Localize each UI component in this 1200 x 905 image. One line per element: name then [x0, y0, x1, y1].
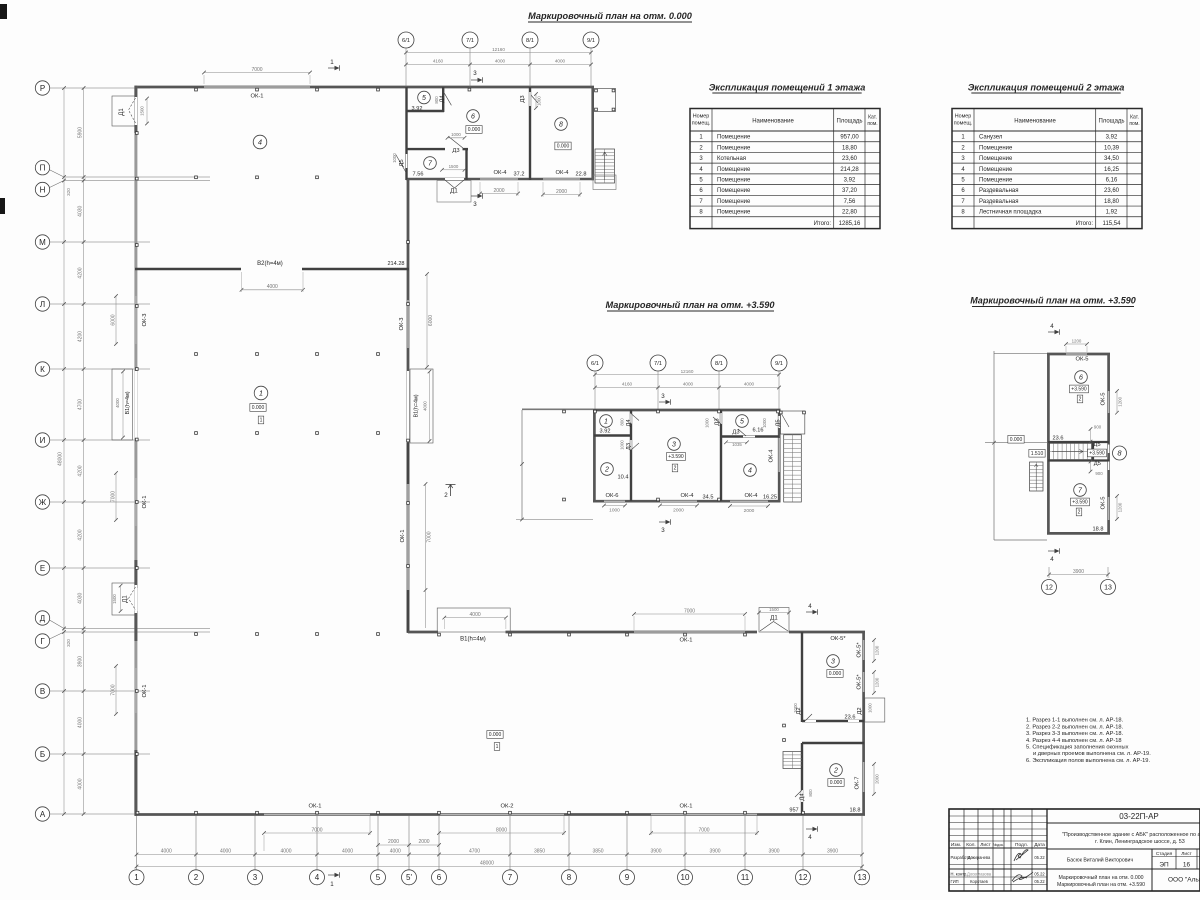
svg-text:8/1: 8/1 — [526, 38, 534, 44]
svg-text:800: 800 — [434, 96, 439, 104]
svg-text:23.6: 23.6 — [845, 715, 856, 721]
svg-text:3900: 3900 — [709, 848, 720, 854]
svg-text:12160: 12160 — [492, 47, 505, 52]
svg-text:1035: 1035 — [732, 442, 742, 447]
svg-text:0.000: 0.000 — [829, 671, 842, 677]
svg-text:18.8: 18.8 — [1093, 526, 1104, 532]
svg-text:Дата: Дата — [1034, 842, 1045, 848]
svg-text:+3.590: +3.590 — [668, 454, 684, 460]
svg-text:1000: 1000 — [705, 418, 710, 428]
svg-text:Д5: Д5 — [776, 419, 782, 426]
svg-text:Коротаев: Коротаев — [970, 879, 988, 884]
svg-text:3850: 3850 — [534, 848, 545, 854]
svg-text:4000: 4000 — [267, 284, 278, 290]
svg-text:Д: Д — [40, 614, 46, 623]
svg-text:ОК-5*: ОК-5* — [857, 642, 863, 658]
svg-text:37.2: 37.2 — [514, 172, 525, 178]
svg-text:16: 16 — [1183, 862, 1191, 869]
svg-text:Лестничная площадка: Лестничная площадка — [979, 210, 1042, 216]
svg-text:Маркировочный план на отм. +3.: Маркировочный план на отм. +3.590 — [970, 296, 1136, 306]
svg-text:1.510: 1.510 — [1031, 451, 1044, 457]
svg-text:Кол.: Кол. — [966, 842, 976, 848]
svg-text:5': 5' — [406, 873, 412, 882]
svg-text:1500: 1500 — [769, 607, 779, 612]
svg-text:957: 957 — [789, 808, 798, 814]
svg-text:3.92: 3.92 — [600, 429, 611, 435]
svg-text:пом.: пом. — [1129, 121, 1139, 127]
svg-text:Итого:: Итого: — [814, 221, 832, 227]
svg-text:7000: 7000 — [427, 531, 433, 542]
svg-text:Помещение: Помещение — [717, 188, 751, 194]
svg-text:ГИП: ГИП — [951, 879, 959, 884]
svg-text:М: М — [39, 238, 46, 247]
svg-text:48000: 48000 — [58, 452, 64, 466]
svg-text:1: 1 — [496, 744, 499, 750]
svg-text:И: И — [40, 436, 46, 445]
svg-text:1500: 1500 — [140, 106, 145, 116]
svg-text:5: 5 — [376, 873, 381, 882]
svg-text:Д1: Д1 — [123, 595, 129, 603]
svg-text:Стадия: Стадия — [1156, 851, 1173, 857]
svg-text:Котельная: Котельная — [717, 156, 746, 162]
svg-text:3900: 3900 — [650, 848, 661, 854]
svg-text:ООО "Альп: ООО "Альп — [1168, 877, 1200, 884]
svg-text:+3.590: +3.590 — [1089, 451, 1105, 457]
svg-text:05.22: 05.22 — [1034, 855, 1045, 860]
svg-text:05.22: 05.22 — [1034, 871, 1045, 876]
svg-text:4030: 4030 — [78, 205, 84, 216]
svg-text:Изм.: Изм. — [951, 842, 961, 848]
svg-text:Д1: Д1 — [119, 108, 125, 116]
svg-text:34.5: 34.5 — [703, 495, 714, 501]
svg-text:Д5: Д5 — [1093, 442, 1100, 448]
svg-text:4000: 4000 — [78, 778, 84, 789]
svg-text:800: 800 — [808, 789, 813, 797]
svg-text:9/1: 9/1 — [587, 38, 595, 44]
svg-text:4700: 4700 — [469, 848, 480, 854]
svg-text:1200: 1200 — [1117, 396, 1122, 406]
svg-text:7/1: 7/1 — [466, 38, 474, 44]
svg-text:900: 900 — [1095, 471, 1103, 476]
svg-text:48000: 48000 — [480, 860, 494, 866]
svg-text:Д1: Д1 — [450, 189, 458, 195]
svg-text:Д5: Д5 — [1094, 461, 1101, 467]
svg-text:3: 3 — [253, 873, 258, 882]
svg-text:ОК-5*: ОК-5* — [830, 636, 846, 642]
svg-text:Санузел: Санузел — [979, 135, 1003, 141]
svg-text:1000: 1000 — [868, 703, 873, 713]
svg-text:4160: 4160 — [433, 59, 444, 64]
svg-text:Д2: Д2 — [857, 707, 863, 714]
svg-text:помещ.: помещ. — [692, 121, 711, 127]
svg-text:4000: 4000 — [495, 59, 506, 64]
svg-text:ОК-1: ОК-1 — [679, 804, 692, 810]
svg-text:А: А — [40, 810, 46, 819]
svg-text:Д4: Д4 — [440, 95, 446, 103]
svg-text:23,60: 23,60 — [1104, 188, 1120, 194]
svg-text:0.000: 0.000 — [557, 144, 570, 150]
svg-text:23.6: 23.6 — [1053, 436, 1064, 442]
svg-text:0.000: 0.000 — [468, 127, 481, 133]
svg-text:1000: 1000 — [536, 96, 541, 106]
svg-text:Помещение: Помещение — [717, 199, 751, 205]
svg-text:10.4: 10.4 — [618, 475, 629, 481]
svg-text:3900: 3900 — [1073, 569, 1084, 575]
svg-text:В: В — [40, 687, 45, 696]
svg-text:Лист: Лист — [980, 842, 991, 848]
svg-text:3: 3 — [661, 527, 665, 534]
svg-text:ОК-3: ОК-3 — [142, 313, 148, 326]
svg-text:2000: 2000 — [744, 508, 755, 514]
svg-text:Раздевальная: Раздевальная — [979, 188, 1019, 194]
svg-text:3850: 3850 — [592, 848, 603, 854]
svg-text:Помещение: Помещение — [979, 156, 1013, 162]
svg-text:4000: 4000 — [220, 848, 231, 854]
svg-text:3: 3 — [831, 659, 835, 666]
svg-text:Д3: Д3 — [626, 443, 632, 450]
svg-text:и дверных проемов выполнена см: и дверных проемов выполнена см. л. АР-19… — [1033, 751, 1151, 757]
svg-text:6: 6 — [437, 873, 442, 882]
svg-text:2. Разрез 2-2 выполнен см. л.: 2. Разрез 2-2 выполнен см. л. АР-18. — [1026, 724, 1124, 730]
svg-text:Подл.: Подл. — [1015, 842, 1028, 848]
svg-text:Помещение: Помещение — [979, 145, 1013, 151]
svg-text:4000: 4000 — [342, 848, 353, 854]
svg-text:7/1: 7/1 — [654, 361, 662, 367]
svg-text:1: 1 — [134, 873, 139, 882]
svg-text:Д4: Д4 — [626, 419, 632, 427]
svg-text:3. Разрез 3-3 выполнен см. л.: 3. Разрез 3-3 выполнен см. л. АР-18. — [1026, 731, 1124, 737]
svg-text:ЭП: ЭП — [1159, 862, 1169, 869]
svg-text:"Производственное здание с АБК: "Производственное здание с АБК" располож… — [1062, 832, 1200, 838]
svg-text:1200: 1200 — [874, 645, 879, 655]
svg-text:2000: 2000 — [388, 839, 399, 845]
svg-text:34,50: 34,50 — [1104, 156, 1120, 162]
svg-text:7000: 7000 — [311, 827, 322, 833]
svg-text:ОК-6: ОК-6 — [605, 493, 618, 499]
svg-text:ОК-1: ОК-1 — [308, 804, 321, 810]
svg-text:4000: 4000 — [423, 401, 428, 411]
svg-text:1. Разрез 1-1 выполнен см. л.: 1. Разрез 1-1 выполнен см. л. АР-18. — [1026, 718, 1124, 724]
svg-text:7000: 7000 — [110, 684, 116, 695]
svg-text:4000: 4000 — [390, 848, 401, 854]
svg-text:2: 2 — [444, 492, 448, 499]
svg-text:+3.590: +3.590 — [1071, 387, 1087, 393]
svg-text:05.22: 05.22 — [1034, 879, 1045, 884]
svg-text:1500: 1500 — [449, 164, 459, 169]
svg-text:2000: 2000 — [493, 188, 504, 194]
svg-text:Д5: Д5 — [399, 159, 405, 166]
svg-text:4000: 4000 — [115, 398, 120, 408]
svg-text:5: 5 — [422, 95, 426, 102]
svg-text:320: 320 — [66, 188, 71, 196]
svg-text:2000: 2000 — [418, 839, 429, 845]
svg-text:10: 10 — [681, 873, 690, 882]
svg-text:12: 12 — [1045, 585, 1053, 592]
svg-text:10,39: 10,39 — [1104, 145, 1120, 151]
svg-text:ОК-4: ОК-4 — [769, 449, 775, 463]
svg-text:Раздевальная: Раздевальная — [979, 199, 1019, 205]
svg-text:Наименование: Наименование — [752, 119, 794, 125]
svg-text:4200: 4200 — [78, 529, 84, 540]
svg-text:ОК-4: ОК-4 — [493, 170, 507, 176]
svg-text:1000: 1000 — [620, 440, 625, 450]
svg-text:ОК-4: ОК-4 — [744, 493, 758, 499]
svg-text:4000: 4000 — [744, 382, 755, 387]
svg-text:Р: Р — [40, 84, 45, 93]
svg-text:ОК-7: ОК-7 — [855, 776, 861, 789]
svg-text:6: 6 — [471, 114, 475, 121]
svg-text:Докиранева: Докиранева — [968, 855, 991, 860]
svg-text:ОК-1: ОК-1 — [142, 495, 148, 508]
svg-text:Д3: Д3 — [452, 148, 459, 154]
svg-text:37,20: 37,20 — [842, 188, 858, 194]
svg-text:4200: 4200 — [78, 267, 84, 278]
svg-text:22.8: 22.8 — [576, 172, 587, 178]
svg-text:2000: 2000 — [673, 507, 684, 513]
svg-text:ОК-5: ОК-5 — [1075, 357, 1088, 363]
svg-text:Ж: Ж — [39, 498, 47, 507]
svg-text:Маркировочный план на отм. +3.: Маркировочный план на отм. +3.590 — [1057, 881, 1145, 888]
svg-text:Д4: Д4 — [800, 793, 806, 801]
svg-text:4: 4 — [808, 834, 812, 841]
svg-text:214.28: 214.28 — [387, 261, 404, 267]
svg-text:№док.: №док. — [993, 843, 1004, 847]
svg-text:пом.: пом. — [867, 121, 877, 127]
svg-text:помещ.: помещ. — [954, 121, 973, 127]
svg-text:2: 2 — [604, 467, 609, 474]
svg-text:4: 4 — [258, 138, 262, 147]
svg-text:Маркировочный план на отм. 0.0: Маркировочный план на отм. 0.000 — [1059, 874, 1144, 881]
svg-text:3: 3 — [672, 442, 676, 449]
svg-text:8: 8 — [567, 873, 572, 882]
svg-text:4: 4 — [748, 468, 752, 475]
svg-text:3: 3 — [473, 201, 477, 208]
svg-text:Номер: Номер — [955, 114, 972, 120]
svg-text:В1(h=4м): В1(h=4м) — [414, 394, 420, 417]
svg-text:Итого:: Итого: — [1076, 221, 1094, 227]
svg-text:8000: 8000 — [496, 827, 507, 833]
svg-text:5. Спецификация заполнения око: 5. Спецификация заполнения оконных — [1026, 744, 1129, 750]
svg-text:11: 11 — [741, 873, 750, 882]
svg-text:7000: 7000 — [698, 827, 709, 833]
svg-text:3,92: 3,92 — [844, 177, 856, 183]
svg-text:+3.590: +3.590 — [1072, 500, 1088, 506]
svg-text:3900: 3900 — [78, 656, 84, 667]
svg-text:Д1: Д1 — [770, 616, 778, 622]
svg-text:0.000: 0.000 — [252, 405, 265, 411]
svg-text:Н: Н — [40, 185, 46, 194]
svg-text:13: 13 — [1104, 585, 1112, 592]
svg-text:Д3: Д3 — [520, 95, 526, 102]
svg-text:1,92: 1,92 — [1106, 210, 1118, 216]
svg-text:4000: 4000 — [280, 848, 291, 854]
svg-text:3.92: 3.92 — [412, 106, 423, 112]
svg-text:2: 2 — [833, 768, 838, 775]
svg-text:4200: 4200 — [78, 465, 84, 476]
svg-text:Н. контр.: Н. контр. — [951, 871, 968, 876]
svg-text:4160: 4160 — [622, 382, 633, 387]
svg-text:6000: 6000 — [110, 314, 116, 325]
svg-text:9: 9 — [625, 873, 630, 882]
svg-text:3900: 3900 — [827, 848, 838, 854]
svg-text:Номер: Номер — [693, 114, 710, 120]
svg-text:ОК-5*: ОК-5* — [857, 674, 863, 690]
svg-text:Б: Б — [40, 750, 45, 759]
svg-text:Д3: Д3 — [732, 430, 739, 436]
svg-text:6,16: 6,16 — [1106, 177, 1118, 183]
svg-text:Маркировочный план на отм. +3.: Маркировочный план на отм. +3.590 — [605, 300, 775, 310]
svg-text:4: 4 — [1050, 323, 1054, 330]
svg-text:1: 1 — [330, 59, 334, 66]
svg-text:3: 3 — [661, 393, 665, 400]
svg-text:0.000: 0.000 — [830, 780, 843, 786]
svg-text:1285,16: 1285,16 — [839, 221, 861, 227]
svg-text:6/1: 6/1 — [402, 38, 410, 44]
svg-text:8: 8 — [559, 122, 563, 129]
svg-text:3: 3 — [473, 70, 477, 77]
svg-text:Маркировочный план на отм. 0.0: Маркировочный план на отм. 0.000 — [528, 11, 693, 21]
svg-text:ОК-2: ОК-2 — [500, 804, 513, 810]
svg-text:8/1: 8/1 — [715, 361, 723, 367]
svg-text:Лист: Лист — [1181, 851, 1192, 857]
svg-text:1000: 1000 — [451, 132, 461, 137]
svg-text:Помещение: Помещение — [717, 135, 751, 141]
svg-text:7000: 7000 — [110, 491, 116, 502]
svg-text:Экспликация помещений 2 этажа: Экспликация помещений 2 этажа — [968, 83, 1125, 93]
svg-text:4200: 4200 — [78, 331, 84, 342]
svg-text:Е: Е — [40, 564, 45, 573]
svg-text:Помещение: Помещение — [979, 167, 1013, 173]
svg-text:18.8: 18.8 — [850, 808, 861, 814]
svg-text:16.25: 16.25 — [763, 495, 777, 501]
svg-text:Л: Л — [40, 300, 45, 309]
svg-text:0.000: 0.000 — [1010, 437, 1023, 443]
svg-text:1: 1 — [259, 389, 263, 398]
svg-text:2: 2 — [194, 873, 199, 882]
svg-text:1500: 1500 — [112, 594, 117, 604]
svg-text:2: 2 — [674, 466, 677, 472]
svg-text:12: 12 — [799, 873, 808, 882]
svg-text:6. Экспликация полов выполнена: 6. Экспликация полов выполнена см. л. АР… — [1026, 758, 1150, 764]
svg-text:Кат.: Кат. — [1130, 115, 1139, 121]
svg-text:Помещение: Помещение — [717, 177, 751, 183]
svg-text:Площадь: Площадь — [1098, 119, 1124, 125]
svg-text:Помещение: Помещение — [979, 177, 1013, 183]
svg-text:0.000: 0.000 — [489, 732, 502, 738]
svg-text:18,80: 18,80 — [1104, 199, 1120, 205]
svg-text:ОК-4: ОК-4 — [555, 170, 569, 176]
svg-text:ОК-3: ОК-3 — [399, 317, 405, 330]
svg-text:Площадь: Площадь — [836, 119, 862, 125]
svg-text:5900: 5900 — [78, 127, 84, 138]
svg-text:Кат.: Кат. — [868, 115, 877, 121]
svg-text:B2(h=4м): B2(h=4м) — [257, 261, 283, 267]
svg-text:В1(h=4м): В1(h=4м) — [125, 391, 131, 414]
svg-text:957,00: 957,00 — [840, 135, 859, 141]
svg-text:4000: 4000 — [161, 848, 172, 854]
svg-text:3,92: 3,92 — [1106, 135, 1118, 141]
svg-text:115,54: 115,54 — [1103, 221, 1122, 227]
svg-text:П: П — [40, 164, 46, 173]
svg-text:К: К — [40, 365, 45, 374]
svg-text:4. Разрез 4-4 выполнен см. л.: 4. Разрез 4-4 выполнен см. л. АР-18 — [1026, 738, 1122, 744]
svg-text:Помещение: Помещение — [717, 167, 751, 173]
svg-text:ОК-5: ОК-5 — [1101, 392, 1107, 405]
svg-text:ОК-1: ОК-1 — [142, 684, 148, 697]
svg-text:12160: 12160 — [681, 369, 694, 374]
svg-text:1: 1 — [604, 419, 608, 426]
svg-text:16,25: 16,25 — [1104, 167, 1120, 173]
svg-text:4: 4 — [1050, 556, 1054, 563]
svg-text:Басюк Виталий Викторович: Басюк Виталий Викторович — [1067, 857, 1134, 864]
svg-text:Г: Г — [40, 637, 45, 646]
svg-text:4: 4 — [315, 873, 320, 882]
svg-text:7000: 7000 — [684, 608, 695, 614]
svg-text:Д3: Д3 — [715, 418, 721, 425]
svg-text:5: 5 — [740, 419, 744, 426]
svg-text:ОК-1: ОК-1 — [400, 529, 406, 542]
svg-text:4000: 4000 — [78, 717, 84, 728]
svg-text:6: 6 — [1079, 375, 1083, 382]
svg-text:4000: 4000 — [683, 382, 694, 387]
svg-text:23,60: 23,60 — [842, 156, 858, 162]
svg-text:4700: 4700 — [78, 399, 84, 410]
svg-text:1: 1 — [330, 881, 334, 888]
svg-text:ОК-1: ОК-1 — [250, 94, 263, 100]
svg-text:4030: 4030 — [78, 592, 84, 603]
svg-text:Помещение: Помещение — [717, 210, 751, 216]
svg-text:6/1: 6/1 — [591, 361, 599, 367]
svg-text:1200: 1200 — [1072, 338, 1082, 343]
svg-text:1200: 1200 — [1117, 502, 1122, 512]
svg-text:1200: 1200 — [874, 677, 879, 687]
svg-text:3900: 3900 — [768, 848, 779, 854]
svg-text:214,28: 214,28 — [840, 167, 859, 173]
svg-text:900: 900 — [1094, 425, 1102, 430]
svg-text:1: 1 — [260, 418, 263, 424]
svg-text:Наименование: Наименование — [1014, 119, 1056, 125]
svg-text:6000: 6000 — [428, 315, 434, 326]
svg-text:7,56: 7,56 — [844, 199, 856, 205]
svg-text:2000: 2000 — [556, 189, 567, 195]
svg-text:ОК-1: ОК-1 — [679, 638, 692, 644]
svg-text:13: 13 — [858, 873, 867, 882]
svg-text:7: 7 — [508, 873, 513, 882]
svg-text:2: 2 — [1078, 510, 1081, 516]
svg-text:Помещение: Помещение — [717, 145, 751, 151]
svg-text:ОК-5: ОК-5 — [1101, 496, 1107, 509]
svg-text:9/1: 9/1 — [775, 361, 783, 367]
svg-text:18,80: 18,80 — [842, 145, 858, 151]
svg-text:Досеглазова: Досеглазова — [967, 871, 992, 876]
svg-text:Экспликация помещений 1 этажа: Экспликация помещений 1 этажа — [709, 83, 866, 93]
svg-text:1000: 1000 — [762, 418, 767, 428]
svg-text:03-22П-АР: 03-22П-АР — [1119, 812, 1159, 821]
svg-text:7000: 7000 — [251, 67, 262, 73]
svg-text:1000: 1000 — [793, 703, 798, 713]
svg-text:7.56: 7.56 — [413, 172, 424, 178]
svg-text:320: 320 — [66, 639, 71, 647]
svg-text:1000: 1000 — [609, 507, 620, 513]
svg-text:22,80: 22,80 — [842, 210, 858, 216]
svg-text:1000: 1000 — [392, 153, 397, 163]
svg-text:В1(h=4м): В1(h=4м) — [460, 637, 486, 643]
svg-text:2: 2 — [1079, 397, 1082, 403]
svg-text:г. Клин, Ленинградское шоссе,: г. Клин, Ленинградское шоссе, д. 53 — [1095, 839, 1185, 845]
svg-text:800: 800 — [620, 418, 625, 426]
svg-text:4000: 4000 — [470, 612, 481, 618]
svg-text:2000: 2000 — [874, 774, 879, 784]
